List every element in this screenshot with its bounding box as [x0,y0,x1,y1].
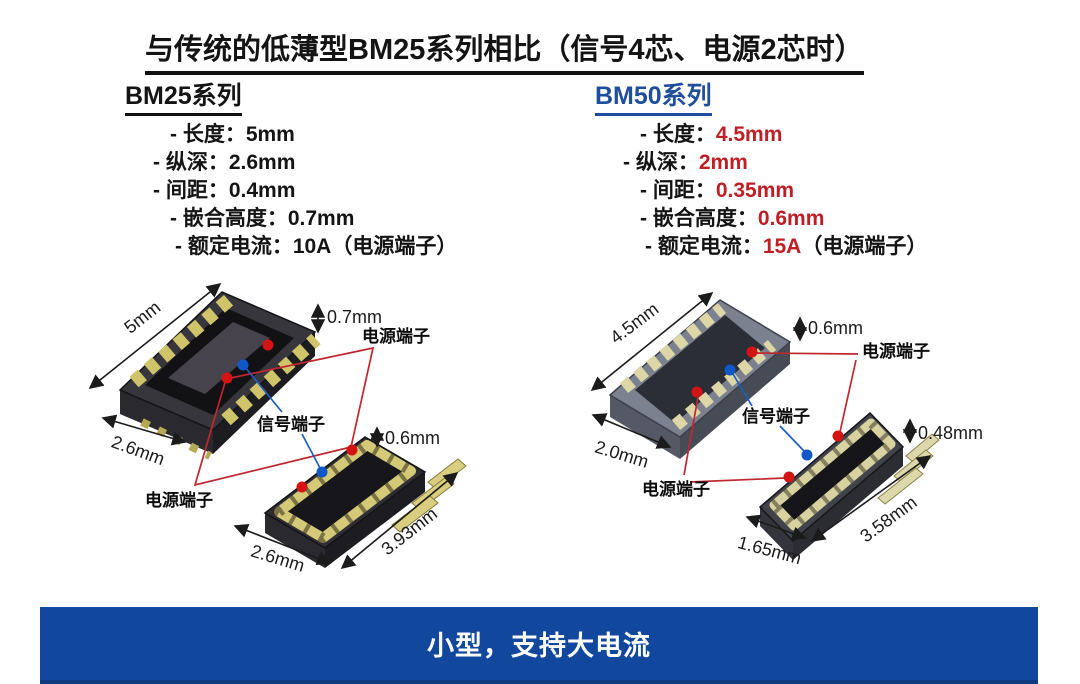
bm50-heading: BM50系列 [595,76,712,116]
dim-plug-height: 0.48mm [918,423,983,443]
bm50-connector-diagram: 4.5mm 2.0mm 0.6mm 0.48mm 1.65mm 3.58mm 电… [560,270,1080,600]
signal-terminal-dot [802,450,813,461]
spec-suffix: （电源端子） [331,235,457,258]
power-terminal-dot [297,482,308,493]
power-terminal-dot [347,445,358,456]
bm50-spec-length: - 长度：4.5mm [595,121,1065,149]
signal-terminal-dot [238,360,249,371]
spec-value: 0.4mm [229,179,296,202]
dim-depth: 2.6mm [109,432,168,470]
signal-terminal-label: 信号端子 [257,414,325,434]
spec-value: 0.7mm [288,207,355,230]
spec-label: - 长度： [170,123,246,146]
bm50-spec-pitch: - 间距：0.35mm [595,177,1065,205]
power-terminal-dot [833,431,844,442]
spec-value: 2.6mm [229,151,296,174]
dim-height: 0.6mm [808,318,863,338]
power-terminal-link [840,360,856,432]
power-terminal-label-bottom: 电源端子 [642,479,710,499]
banner-text: 小型，支持大电流 [427,624,651,663]
power-terminal-label-top: 电源端子 [862,341,930,361]
power-terminal-dot [222,373,233,384]
signal-terminal-label: 信号端子 [742,406,810,426]
power-terminal-label-top: 电源端子 [362,326,430,346]
signal-terminal-link [302,434,320,468]
spec-label: - 长度： [640,123,716,146]
spec-value: 10A [293,235,332,258]
dim-depth: 2.0mm [593,437,651,472]
spec-value: 5mm [246,123,295,146]
power-terminal-dot [692,387,703,398]
dim-length: 5mm [120,297,164,337]
spec-value: 15A [763,235,802,258]
spec-value: 0.35mm [716,179,794,202]
spec-suffix: （电源端子） [801,235,927,258]
bm50-spec-mated-height: - 嵌合高度：0.6mm [595,205,1065,233]
signal-terminal-dot [725,365,736,376]
power-terminal-dot [747,347,758,358]
power-terminal-link [757,353,858,354]
bm50-spec-depth: - 纵深：2mm [595,149,1065,177]
signal-terminal-link [780,426,804,451]
dim-height: 0.7mm [327,307,382,327]
spec-label: - 嵌合高度： [170,207,288,230]
bm25-spec-pitch: - 间距：0.4mm [125,177,595,205]
spec-label: - 纵深： [153,151,229,174]
bm25-connector-diagram: 5mm 2.6mm 0.7mm 0.6mm 2.6mm 3.93mm 电源端子 … [30,260,550,600]
spec-label: - 纵深： [623,151,699,174]
bm50-plug-connector [760,413,939,560]
bm50-spec-panel: BM50系列 - 长度：4.5mm - 纵深：2mm - 间距：0.35mm -… [595,76,1065,261]
dim-plug-height: 0.6mm [385,428,440,448]
bm25-spec-mated-height: - 嵌合高度：0.7mm [125,205,595,233]
spec-label: - 额定电流： [175,235,293,258]
slide: 与传统的低薄型BM25系列相比（信号4芯、电源2芯时） BM25系列 - 长度：… [0,0,1080,684]
spec-value: 0.6mm [758,207,825,230]
signal-terminal-dot [317,467,328,478]
bm25-spec-panel: BM25系列 - 长度：5mm - 纵深：2.6mm - 间距：0.4mm - … [125,76,595,261]
bm25-heading: BM25系列 [125,76,242,116]
spec-value: 2mm [699,151,748,174]
power-terminal-dot [784,472,795,483]
spec-label: - 间距： [640,179,716,202]
spec-label: - 间距： [153,179,229,202]
bm25-spec-length: - 长度：5mm [125,121,595,149]
bottom-banner: 小型，支持大电流 [40,607,1038,684]
power-terminal-dot [263,340,274,351]
spec-value: 4.5mm [716,123,783,146]
spec-label: - 嵌合高度： [640,207,758,230]
spec-label: - 额定电流： [645,235,763,258]
page-title: 与传统的低薄型BM25系列相比（信号4芯、电源2芯时） [145,26,864,75]
bm50-spec-current: - 额定电流：15A（电源端子） [595,233,1065,261]
bm25-spec-depth: - 纵深：2.6mm [125,149,595,177]
bm25-spec-current: - 额定电流：10A（电源端子） [125,233,595,261]
power-terminal-label-bottom: 电源端子 [145,490,213,510]
